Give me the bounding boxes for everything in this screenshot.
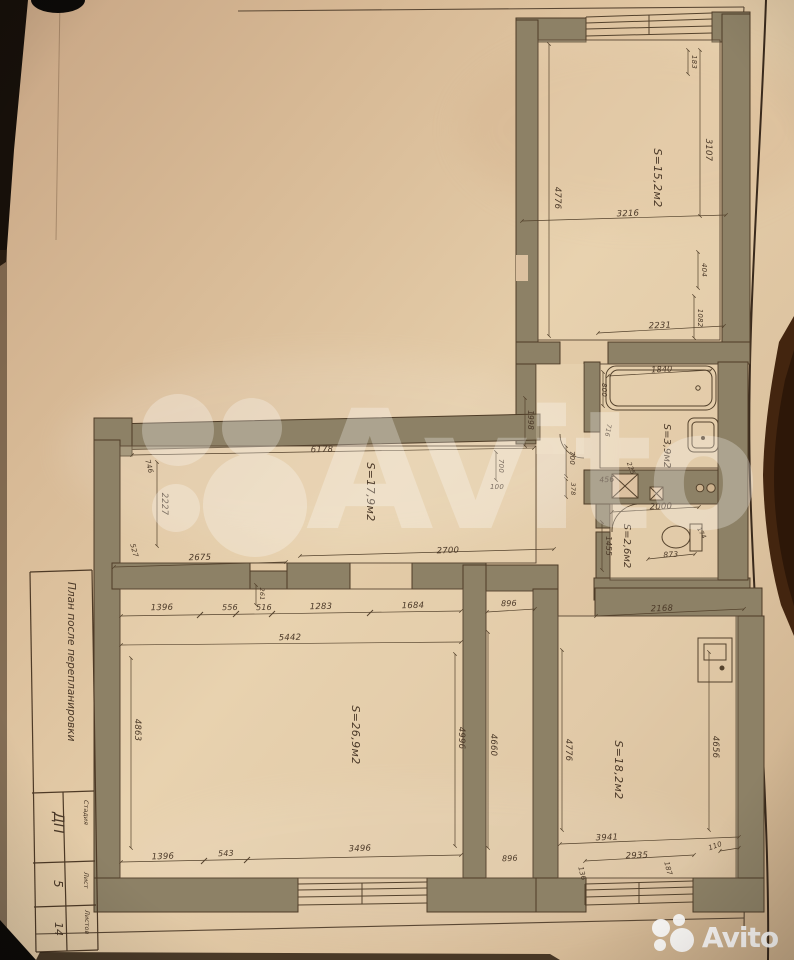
- floor-plan-photo: 183 3107 4776 3216 404 1082 2231 1840 80…: [0, 0, 794, 960]
- vignette: [0, 0, 794, 960]
- floor-plan-canvas: 183 3107 4776 3216 404 1082 2231 1840 80…: [0, 0, 794, 960]
